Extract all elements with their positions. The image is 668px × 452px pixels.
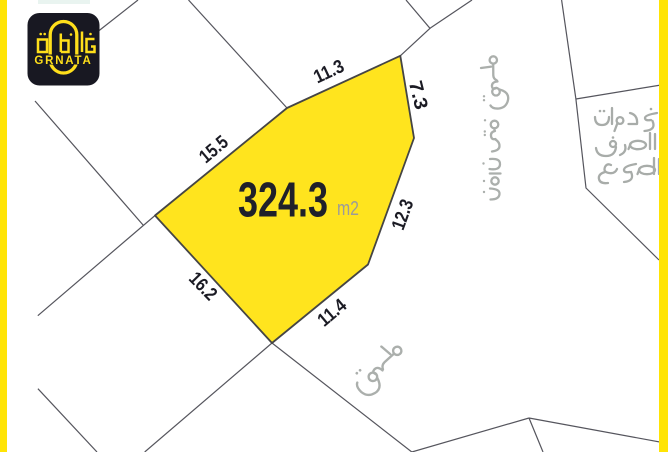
svg-text:324.3: 324.3 [238, 173, 328, 228]
svg-text:m2: m2 [337, 198, 359, 220]
svg-text:GRNATA: GRNATA [34, 55, 92, 67]
